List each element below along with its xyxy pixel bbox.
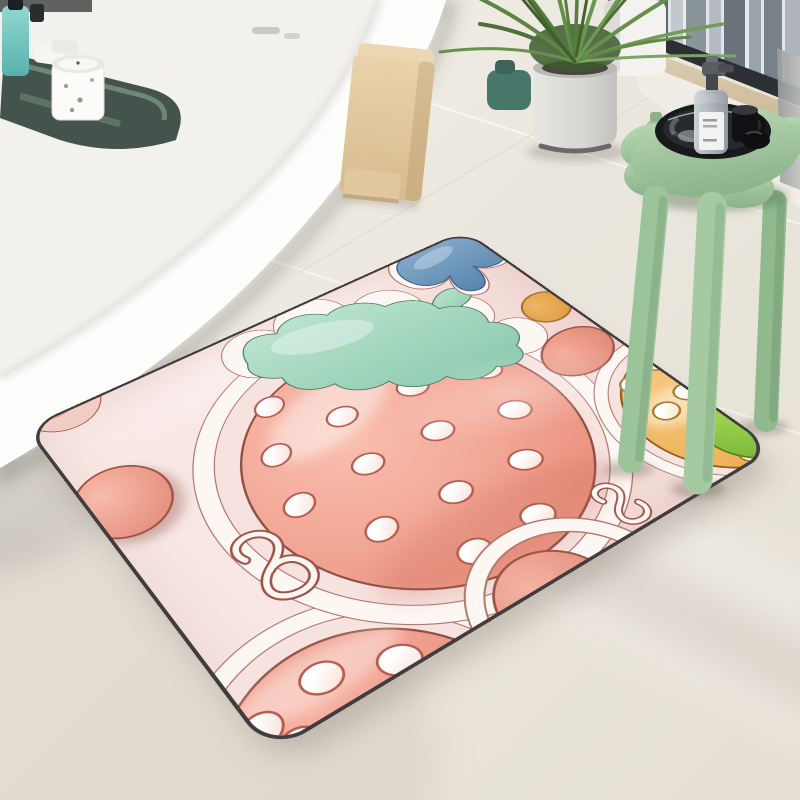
bathroom-photo [0,0,800,800]
teal-bottle-pump [8,0,23,10]
candle-jar [52,55,104,120]
teal-bottle [2,6,29,76]
soap-bar-2 [51,39,78,56]
plant-pot [533,70,617,152]
tub-overflow-detail [252,27,280,34]
beige-towel [338,42,436,210]
tub-overflow-detail-2 [284,33,300,39]
black-pump-dispenser [30,4,44,22]
